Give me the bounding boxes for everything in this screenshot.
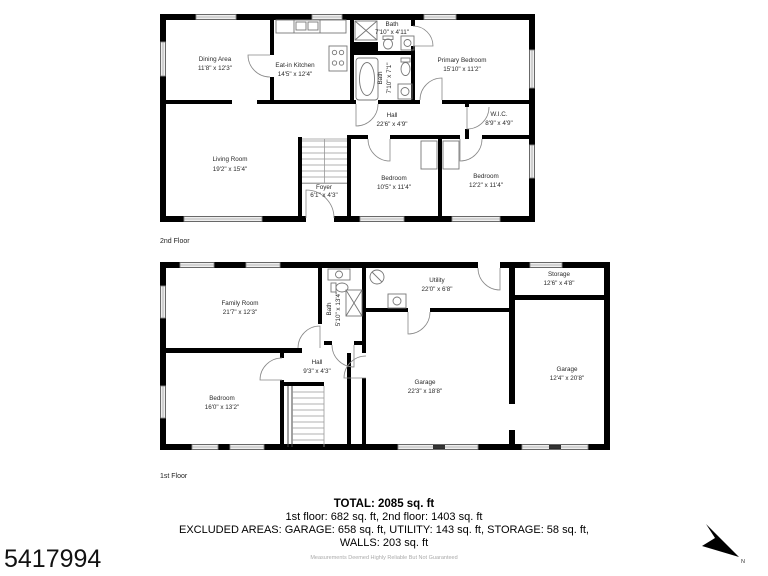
walls-area-line: WALLS: 203 sq. ft [0,537,768,550]
first-floor-interior-walls [166,265,604,447]
room-label-family: Family Room [221,300,258,307]
excluded-areas-line: EXCLUDED AREAS: GARAGE: 658 sq. ft, UTIL… [0,524,768,537]
room-label-bedroom1: Bedroom [381,175,407,182]
room-label-bath2: Bath [377,71,384,84]
room-dims-utility: 22'0" x 6'8" [421,286,452,293]
first-floor-doors [260,268,500,380]
room-label-hall2: Hall [387,112,398,119]
room-dims-bath1: 7'10" x 4'11" [375,29,409,36]
room-dims-storage: 12'6" x 4'8" [543,280,574,287]
room-label-bath: Bath [326,302,333,315]
room-label-bedroom: Bedroom [209,395,235,402]
foyer-entry-gap [306,216,334,222]
first-floor-plan: Family Room 21'7" x 12'3" Bath 5'10" x 1… [160,262,610,480]
toilet-icon [331,283,336,292]
first-floor-windows [161,262,588,449]
room-dims-bedroom1: 10'5" x 11'4" [377,184,411,191]
disclaimer-text: Measurements Deemed Highly Reliable But … [0,555,768,561]
room-dims-living: 19'2" x 15'4" [213,166,248,173]
room-dims-bedroom2: 12'2" x 11'4" [469,182,503,189]
floorplan-drawing: Dining Area 11'8" x 12'3" Eat-in Kitchen… [0,0,768,576]
first-floor-stairs [288,386,324,447]
floor-areas-line: 1st floor: 682 sq. ft, 2nd floor: 1403 s… [0,511,768,524]
room-label-garage1: Garage [414,379,436,386]
first-floor-outer-walls [160,262,610,450]
second-floor-stairs [302,139,347,184]
room-dims-hall1: 9'3" x 4'3" [303,368,331,375]
room-dims-kitchen: 14'5" x 12'4" [278,71,313,78]
room-label-living: Living Room [213,156,248,163]
utility-fixtures [370,270,406,308]
room-label-bath-group: Bath 5'10" x 13'4" [326,292,342,327]
room-dims-wic: 8'9" x 4'9" [485,120,513,127]
first-floor-label: 1st Floor [160,473,188,480]
room-dims-foyer: 6'1" x 4'3" [310,192,338,199]
room-dims-dining: 11'8" x 12'3" [198,65,232,72]
stove-icon [329,46,347,71]
room-dims-garage1: 22'3" x 18'8" [408,388,443,395]
second-floor-label: 2nd Floor [160,238,190,245]
washer-icon [388,294,406,308]
room-label-bath1: Bath [386,21,399,28]
first-floor-room-labels: Family Room 21'7" x 12'3" Bath 5'10" x 1… [205,271,585,411]
room-label-dining: Dining Area [199,56,232,63]
room-dims-family: 21'7" x 12'3" [223,309,258,316]
room-label-storage: Storage [548,271,571,278]
room-dims-garage2: 12'4" x 20'8" [550,375,585,382]
listing-id: 5417994 [4,545,101,574]
room-label-bedroom2: Bedroom [473,173,499,180]
sink-icon [398,84,412,99]
second-floor-plan: Dining Area 11'8" x 12'3" Eat-in Kitchen… [160,14,535,245]
room-label-garage2: Garage [556,366,578,373]
total-area-line: TOTAL: 2085 sq. ft [0,497,768,511]
room-label-wic: W.I.C. [490,111,507,118]
toilet-icon [401,58,410,62]
bath2-fixtures [356,58,412,100]
room-dims-primary: 15'10" x 11'2" [443,66,481,73]
room-dims-bath2: 7'10" x 7'1" [386,62,393,93]
room-dims-hall2: 22'6" x 4'9" [376,121,407,128]
room-label-hall1: Hall [312,359,323,366]
room-label-foyer: Foyer [316,184,332,191]
room-label-utility: Utility [429,277,445,284]
utility-entry-gap [478,262,500,268]
floorplan-page: Dining Area 11'8" x 12'3" Eat-in Kitchen… [0,0,768,576]
room-label-primary: Primary Bedroom [438,57,487,64]
room-dims-bath: 5'10" x 13'4" [335,292,342,327]
room-dims-bedroom: 16'0" x 13'2" [205,404,240,411]
room-label-kitchen: Eat-in Kitchen [275,62,315,69]
first-floor-bath-fixtures [328,269,362,316]
area-summary: TOTAL: 2085 sq. ft 1st floor: 682 sq. ft… [0,497,768,561]
room-label-bath2-group: Bath 7'10" x 7'1" [377,62,393,93]
